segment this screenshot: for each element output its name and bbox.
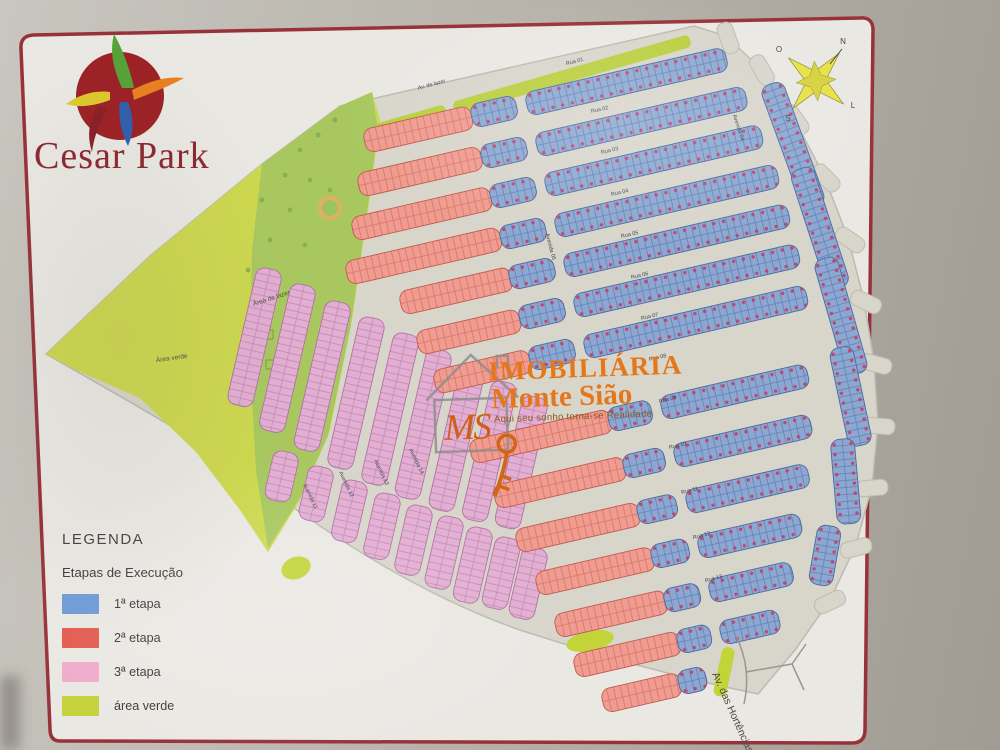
legend-subtitle: Etapas de Execução — [62, 565, 183, 580]
compass-letter: N — [840, 37, 846, 46]
legend-label: área verde — [114, 699, 174, 713]
tree-dot — [333, 118, 338, 123]
compass-letter: L — [851, 101, 856, 110]
legend-label: 1ª etapa — [114, 597, 161, 611]
legend-label: 3ª etapa — [114, 665, 161, 679]
tree-dot — [308, 178, 313, 183]
legend-swatch — [62, 662, 99, 682]
legend-swatch — [62, 696, 99, 716]
compass-letter: S — [785, 114, 790, 123]
brand-title: Cesar Park — [34, 134, 334, 178]
legend-item-4: área verde — [62, 695, 183, 716]
legend-item-1: 1ª etapa — [62, 593, 183, 614]
legend-item-2: 2ª etapa — [62, 627, 183, 648]
compass-letter: O — [776, 45, 782, 54]
watermark-monogram: MS — [443, 406, 492, 449]
photo-of-site-plan-poster: { "poster": { "brand": "Cesar Park", "fr… — [0, 0, 1000, 750]
tree-dot — [328, 188, 333, 193]
legend-swatch — [62, 594, 99, 614]
tree-dot — [260, 198, 265, 203]
legend-label: 2ª etapa — [114, 631, 161, 645]
cul-de-sac-stub — [855, 479, 888, 498]
wall-shadow — [0, 676, 20, 750]
legend-swatch — [62, 628, 99, 648]
tree-dot — [268, 238, 273, 243]
tree-dot — [246, 268, 251, 273]
legend-title: LEGENDA — [62, 531, 183, 548]
legend: LEGENDA Etapas de Execução 1ª etapa2ª et… — [62, 531, 183, 716]
tree-dot — [288, 208, 293, 213]
roundabout-feature — [320, 198, 340, 218]
legend-items: 1ª etapa2ª etapa3ª etapaárea verde — [62, 593, 183, 716]
legend-item-3: 3ª etapa — [62, 661, 183, 682]
tree-dot — [303, 243, 308, 248]
